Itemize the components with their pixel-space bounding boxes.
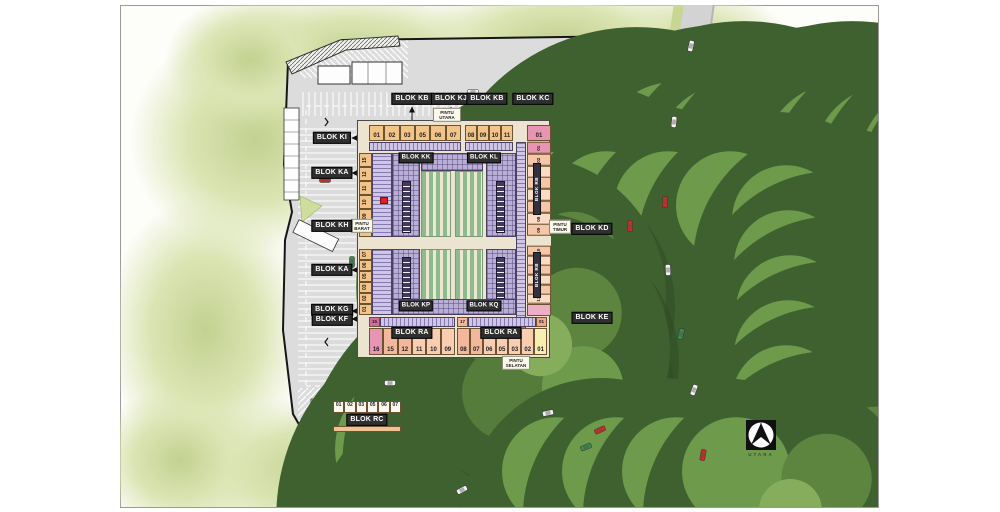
- blok-kh-label: BLOK KH: [311, 220, 352, 232]
- blok-kl-label: BLOK KL: [467, 152, 501, 163]
- unit-cell: 02: [344, 401, 355, 413]
- stall-strip: [369, 142, 461, 151]
- car-icon: [385, 381, 396, 386]
- west-kiosk-row: [284, 108, 299, 200]
- unit-cell: 10: [489, 125, 501, 141]
- blok-kd-label: BLOK KD: [571, 223, 612, 235]
- unit-cell: 01: [359, 304, 372, 315]
- blok-ra-left-label: BLOK RA: [391, 327, 432, 339]
- stall-strip: [372, 153, 392, 237]
- blok-ka2-label: BLOK KA: [311, 264, 352, 276]
- unit-cell: 08: [457, 328, 470, 355]
- unit-cell: 01: [536, 317, 547, 327]
- unit-cell: 01: [527, 125, 551, 141]
- los-green-stalls: [421, 171, 451, 237]
- blok-kc-label: BLOK KC: [512, 93, 553, 105]
- unit-cell: 03: [356, 401, 367, 413]
- unit-cell: 15: [369, 317, 380, 327]
- unit-cell: 06: [359, 260, 372, 271]
- unit-cell: 05: [415, 125, 430, 141]
- site-plan-page: { "labels": { "top": ["BLOK KB", "BLOK K…: [0, 0, 1000, 512]
- blok-kb2-label: BLOK KB: [466, 93, 507, 105]
- blok-ki-label: BLOK KI: [313, 132, 351, 144]
- stall-strip: [468, 317, 536, 327]
- north-gate-label: PINTU UTARA: [433, 108, 461, 122]
- unit-cell: 08: [465, 125, 477, 141]
- unit-cell: 06: [430, 125, 445, 141]
- north-arrow-compass: [746, 420, 776, 450]
- stall-block-bar: [402, 181, 411, 233]
- market-building: 010203050607 08091011 01 010203050607080…: [357, 120, 550, 358]
- unit-cell: 03: [359, 282, 372, 293]
- unit-cell: 05: [359, 271, 372, 282]
- kios-strip-left: 15: [369, 317, 455, 327]
- car-icon: [671, 116, 677, 127]
- stall-strip: [372, 249, 392, 315]
- unit-cell: 11: [501, 125, 513, 141]
- rb-end-unit: [527, 304, 551, 316]
- blok-kf-label: BLOK KF: [312, 314, 353, 326]
- south-gate-label: PINTU SELATAN: [502, 356, 530, 370]
- sold-unit-marker: [380, 197, 388, 204]
- west-units-lower: 070605030201: [359, 249, 372, 315]
- unit-cell: 05: [367, 401, 378, 413]
- blok-kq-label: BLOK KQ: [466, 300, 501, 311]
- blok-kk-label: BLOK KK: [399, 152, 434, 163]
- unit-cell: 09: [477, 125, 489, 141]
- unit-cell: 10: [359, 195, 372, 209]
- stall-strip: [465, 142, 513, 151]
- blok-rc-label: BLOK RC: [346, 414, 387, 426]
- north-building-2: [352, 62, 402, 84]
- unit-cell: 17: [457, 317, 468, 327]
- east-gate-corridor: [527, 236, 551, 246]
- north-building-1: [318, 66, 350, 84]
- west-gate-label: PINTU BARAT: [351, 219, 373, 233]
- blok-rb-label: BLOK RB: [533, 163, 541, 215]
- stall-block-bar: [496, 257, 505, 299]
- blok-kp-label: BLOK KP: [399, 300, 433, 311]
- north-kiosk-row-right: 08091011: [465, 125, 513, 141]
- east-gate-label: PINTU TIMUR: [549, 220, 571, 234]
- car-icon: [628, 221, 633, 232]
- unit-cell: 11: [359, 181, 372, 195]
- unit-cell: 07: [359, 249, 372, 260]
- compass-graphic: [746, 420, 776, 450]
- unit-cell: 12: [359, 167, 372, 181]
- north-kiosk-row-left: 010203050607: [369, 125, 461, 141]
- unit-cell: 03: [400, 125, 415, 141]
- car-icon: [665, 264, 670, 275]
- unit-cell: 02: [521, 328, 534, 355]
- unit-cell: 15: [359, 153, 372, 167]
- blok-kj-label: BLOK KJ: [431, 93, 471, 105]
- kios-strip-right: 17 01: [457, 317, 547, 327]
- car-icon: [662, 196, 667, 207]
- stall-block-bar: [402, 257, 411, 299]
- unit-cell: 02: [359, 293, 372, 304]
- unit-cell: 07: [446, 125, 461, 141]
- corner-unit: 01: [527, 125, 551, 141]
- stall-block-bar: [496, 181, 505, 233]
- unit-cell: 01: [527, 142, 551, 154]
- unit-cell: 01: [333, 401, 344, 413]
- unit-cell: 07: [390, 401, 401, 413]
- blok-ke-label: BLOK KE: [572, 312, 613, 324]
- unit-cell: 02: [384, 125, 399, 141]
- unit-cell: 16: [369, 328, 383, 355]
- rc-strip: [333, 426, 401, 432]
- blok-ka-label: BLOK KA: [311, 167, 352, 179]
- unit-cell: 01: [369, 125, 384, 141]
- unit-cell: 09: [441, 328, 455, 355]
- blok-rb-label: BLOK RB: [533, 252, 541, 298]
- unit-cell: 06: [378, 401, 389, 413]
- rc-units: 010203050607: [333, 401, 401, 413]
- unit-cell: 01: [534, 328, 547, 355]
- unit-cell: 09: [527, 224, 551, 236]
- stall-strip: [516, 142, 526, 332]
- stall-strip: [380, 317, 455, 327]
- blok-kb-label: BLOK KB: [391, 93, 432, 105]
- blok-ra-right-label: BLOK RA: [480, 327, 521, 339]
- compass-north-label: UTARA: [744, 452, 778, 457]
- los-green-stalls: [455, 171, 483, 237]
